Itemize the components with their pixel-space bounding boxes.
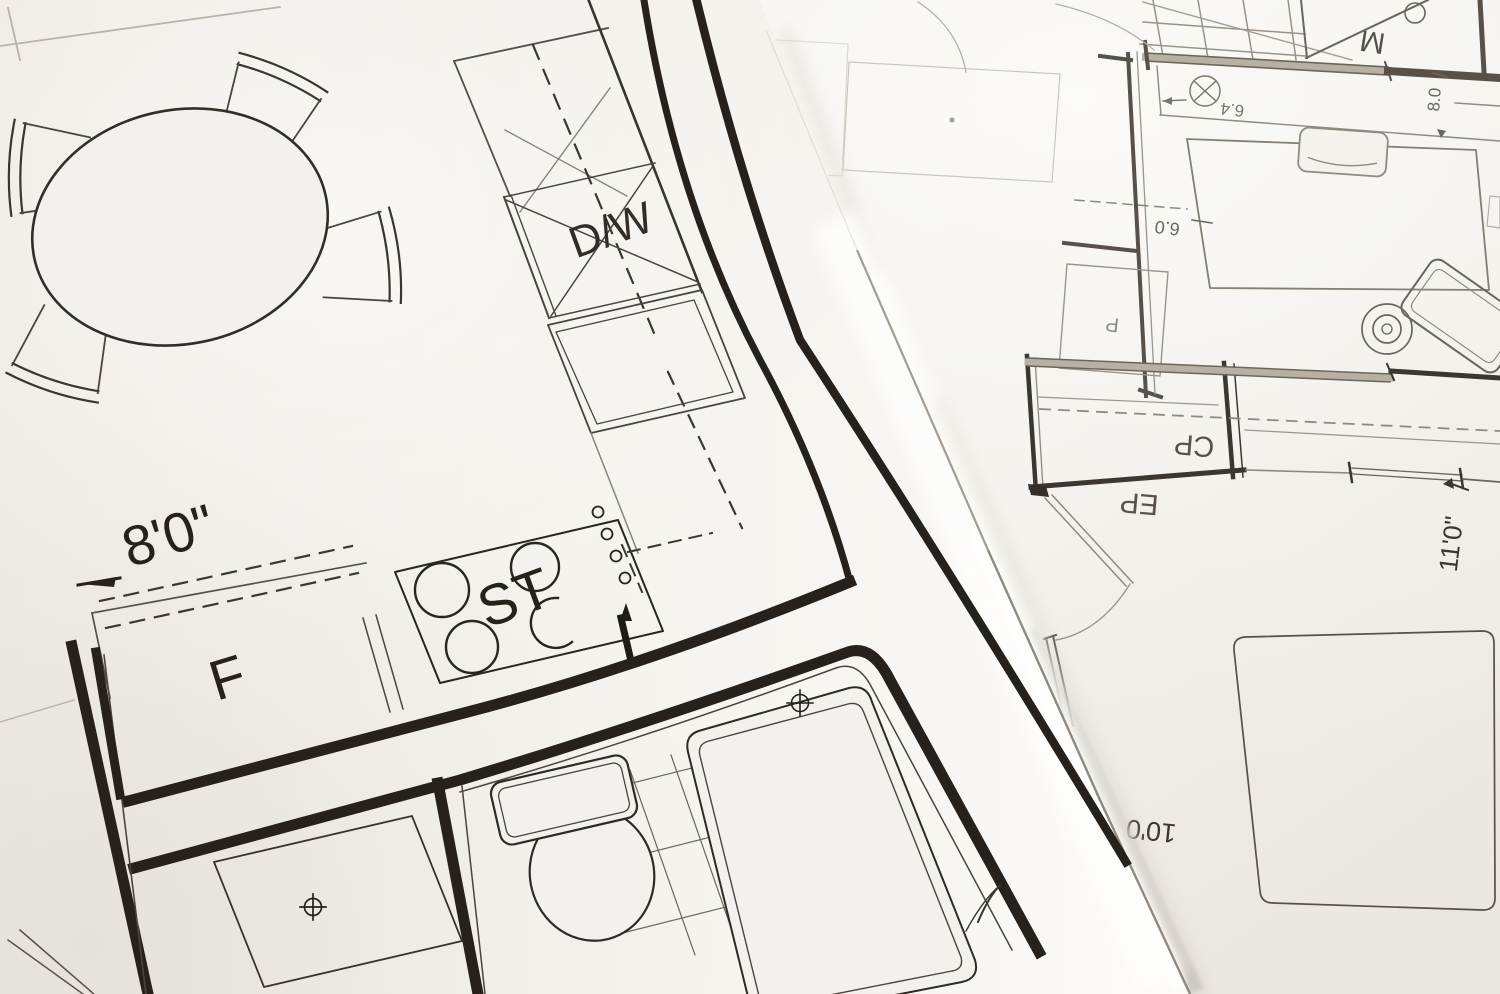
svg-text:EP: EP xyxy=(1119,485,1160,520)
svg-text:CP: CP xyxy=(1173,427,1216,462)
svg-text:M: M xyxy=(1358,23,1388,60)
svg-text:P: P xyxy=(1104,312,1120,335)
svg-text:8.0: 8.0 xyxy=(1424,87,1445,112)
svg-text:6.0: 6.0 xyxy=(1154,217,1181,240)
svg-text:6.4: 6.4 xyxy=(1219,99,1245,121)
